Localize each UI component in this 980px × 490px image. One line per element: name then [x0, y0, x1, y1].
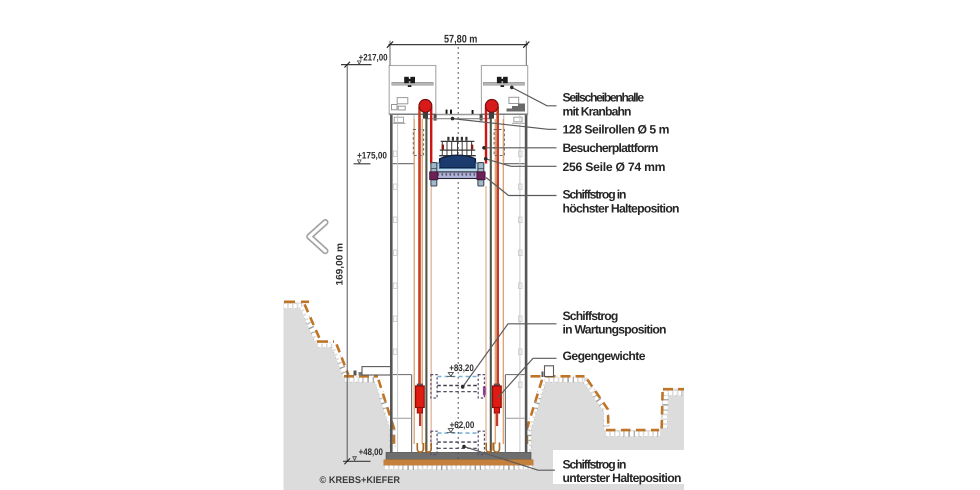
- svg-text:+48,00: +48,00: [359, 447, 383, 458]
- svg-text:Schiffstrog in: Schiffstrog in: [563, 458, 627, 472]
- svg-text:in Wartungsposition: in Wartungsposition: [563, 322, 667, 336]
- svg-text:169,00 m: 169,00 m: [335, 243, 346, 286]
- svg-text:Schiffstrog: Schiffstrog: [563, 309, 619, 323]
- svg-text:höchster Halteposition: höchster Halteposition: [563, 201, 680, 215]
- svg-text:Gegengewichte: Gegengewichte: [563, 349, 646, 363]
- svg-text:+175,00: +175,00: [357, 150, 387, 161]
- svg-text:+62,00: +62,00: [450, 420, 475, 431]
- svg-text:unterster Halteposition: unterster Halteposition: [563, 471, 682, 485]
- svg-text:Seilscheibenhalle: Seilscheibenhalle: [563, 90, 645, 104]
- svg-text:+217,00: +217,00: [359, 52, 388, 63]
- svg-text:Besucherplattform: Besucherplattform: [563, 141, 659, 155]
- svg-text:+83,20: +83,20: [449, 363, 474, 374]
- svg-text:© KREBS+KIEFER: © KREBS+KIEFER: [320, 475, 401, 486]
- svg-text:Schiffstrog in: Schiffstrog in: [563, 187, 627, 201]
- svg-text:57,80 m: 57,80 m: [444, 33, 478, 45]
- svg-text:256 Seile Ø 74 mm: 256 Seile Ø 74 mm: [563, 160, 666, 174]
- svg-text:128 Seilrollen Ø 5 m: 128 Seilrollen Ø 5 m: [563, 122, 670, 136]
- svg-text:mit Kranbahn: mit Kranbahn: [563, 104, 632, 118]
